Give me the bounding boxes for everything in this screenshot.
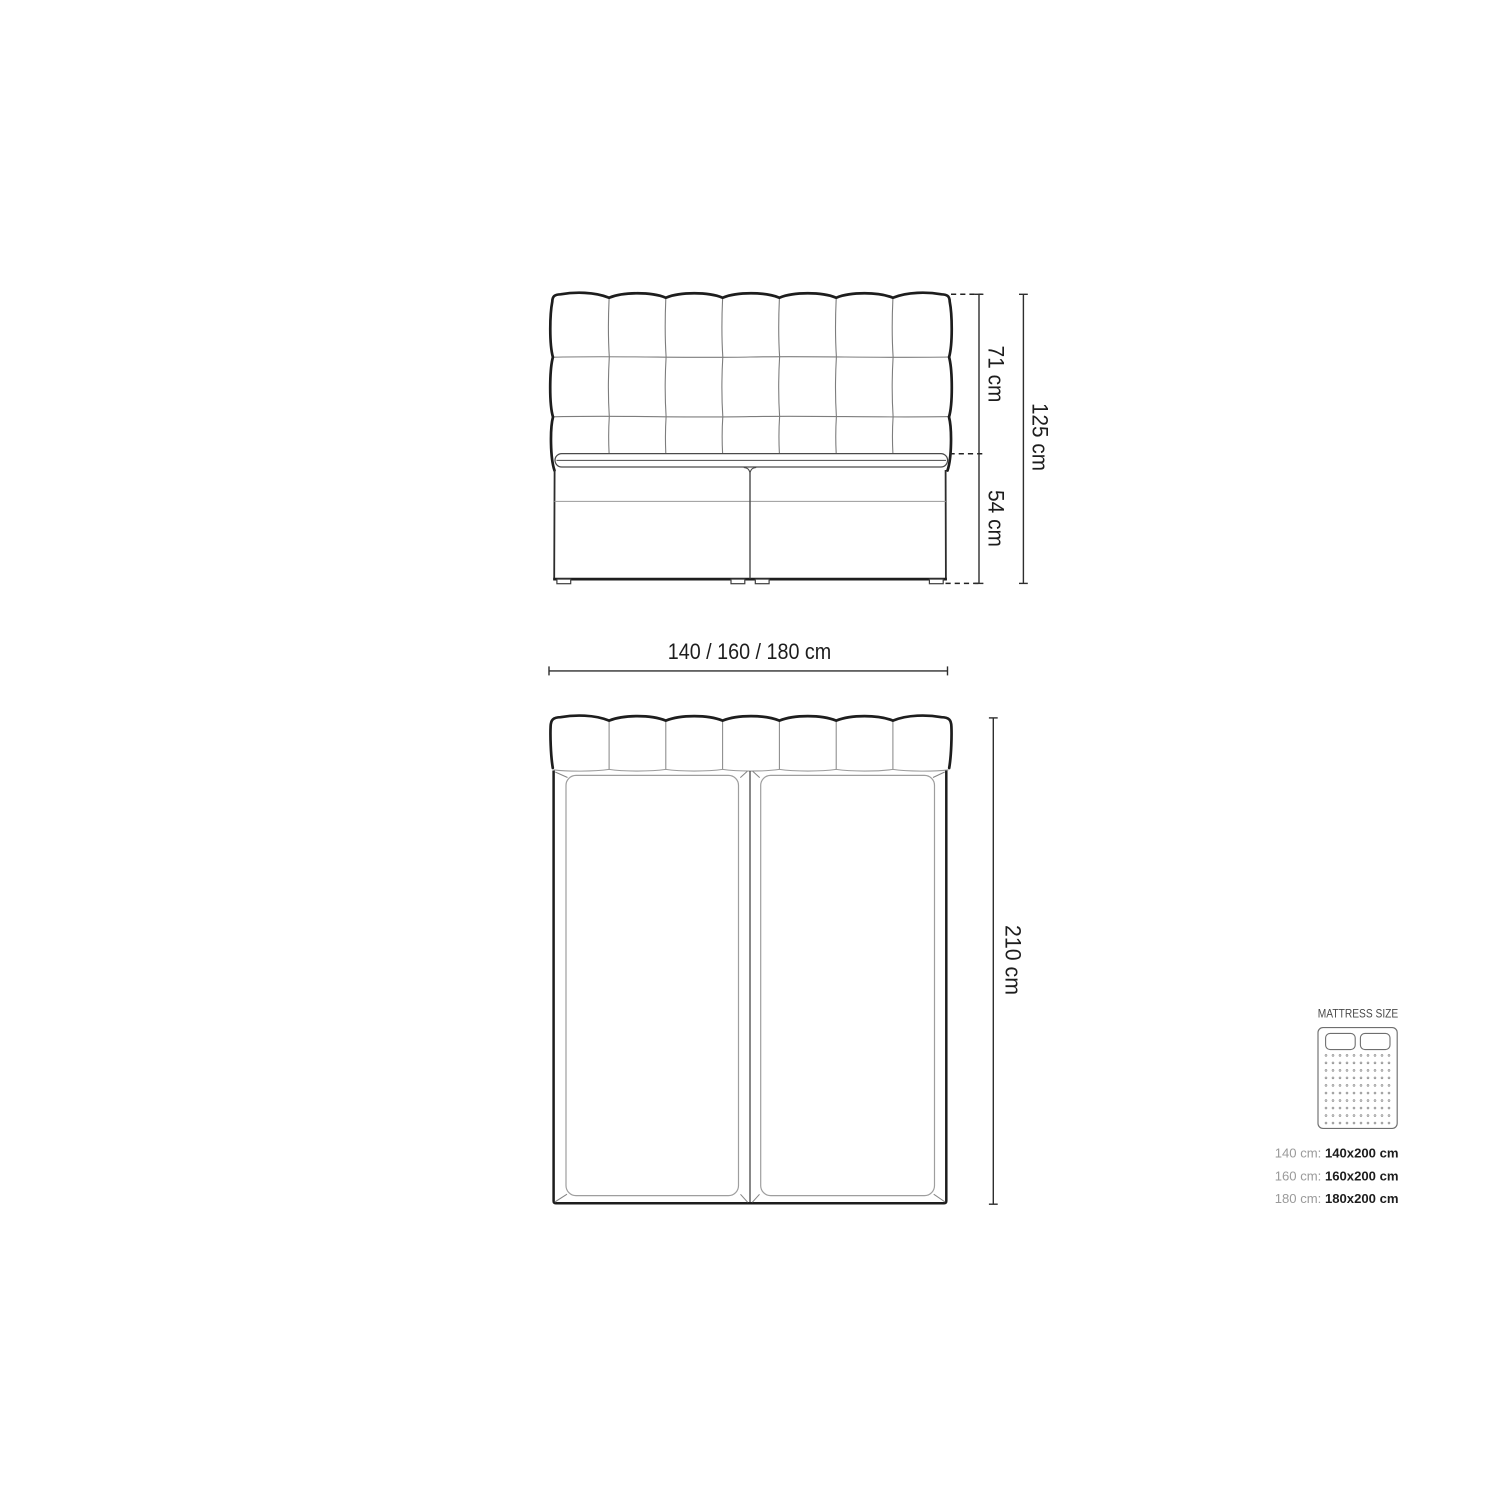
svg-text:160 cm: 160x200 cm: 160 cm: 160x200 cm bbox=[1275, 1168, 1399, 1183]
svg-text:140 cm: 140x200 cm: 140 cm: 140x200 cm bbox=[1275, 1146, 1399, 1161]
svg-text:140 / 160 / 180 cm: 140 / 160 / 180 cm bbox=[668, 639, 832, 664]
svg-text:71 cm: 71 cm bbox=[984, 346, 1009, 403]
svg-text:210 cm: 210 cm bbox=[1001, 925, 1026, 995]
svg-text:125 cm: 125 cm bbox=[1028, 403, 1053, 471]
svg-text:54 cm: 54 cm bbox=[984, 490, 1009, 547]
svg-text:180 cm: 180x200 cm: 180 cm: 180x200 cm bbox=[1275, 1191, 1399, 1206]
svg-text:MATTRESS SIZE: MATTRESS SIZE bbox=[1318, 1006, 1399, 1020]
